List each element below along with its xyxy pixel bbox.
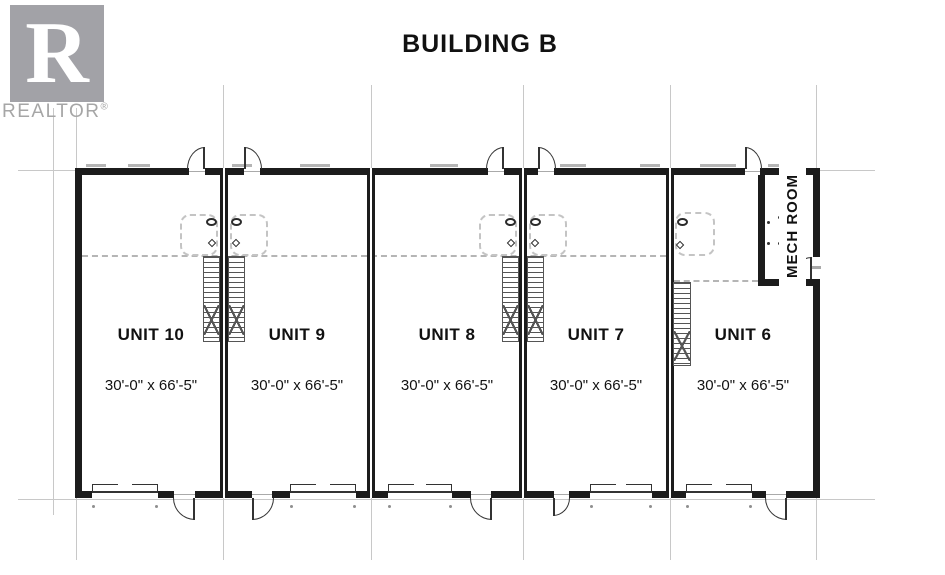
brand-text: REALTOR® [2,101,109,123]
wall-dash [640,164,660,167]
page-title: BUILDING B [290,30,670,59]
party-wall [367,168,375,498]
wall-dash [560,164,586,167]
toilet-fixture [206,218,217,226]
wall-dash [300,164,330,167]
bollard-dot [449,505,452,508]
unit-size-label: 30'-0" x 66'-5" [367,377,527,394]
door-leaf [244,147,246,169]
exit-door-arc [252,498,274,520]
grid-line-horizontal [18,499,875,500]
door-opening [252,491,272,498]
floor-plan-page: R REALTOR® BUILDING B [0,0,945,575]
wall-dash [86,164,106,167]
bollard-dot [590,505,593,508]
wall-dash [700,164,736,167]
bollard-dot [649,505,652,508]
bollard-dot [290,505,293,508]
door-opening [244,168,260,175]
door-opening [189,168,205,175]
mech-equipment-dot [767,221,770,224]
toilet-fixture [505,218,516,226]
exit-door-arc [553,498,570,516]
door-opening [538,168,554,175]
unit-size-label: 30'-0" x 66'-5" [663,377,823,394]
unit-size-label: 30'-0" x 66'-5" [516,377,676,394]
door-leaf [193,498,195,520]
unit-name-label: UNIT 7 [526,325,666,345]
garage-door-opening [686,491,752,499]
garage-door-opening [290,491,356,499]
exit-door-arc [173,498,195,520]
door-opening [174,491,195,498]
door-leaf [203,147,205,169]
entry-door-arc [244,147,262,169]
exit-door-arc [470,498,492,520]
wall-dash [128,164,150,167]
toilet-fixture [530,218,541,226]
garage-door-header [686,484,712,492]
garage-door-header [132,484,158,492]
door-opening [554,491,569,498]
stair [673,282,691,366]
unit-size-label: 30'-0" x 66'-5" [71,377,231,394]
toilet-fixture [677,218,688,226]
door-leaf [538,147,540,169]
door-leaf [810,257,812,279]
exit-door-arc [765,498,787,520]
bollard-dot [353,505,356,508]
bollard-dot [92,505,95,508]
mech-room-label: MECH ROOM [779,162,806,290]
garage-door-opening [388,491,452,499]
door-leaf [553,498,555,516]
entry-door-arc [745,147,762,169]
unit-name-label: UNIT 10 [81,325,221,345]
garage-door-header [388,484,414,492]
bollard-dot [686,505,689,508]
toilet-fixture [231,218,242,226]
door-opening [766,491,786,498]
garage-door-header [330,484,356,492]
door-leaf [785,498,787,520]
unit-name-label: UNIT 8 [377,325,517,345]
garage-door-header [426,484,452,492]
door-opening [745,168,760,175]
unit-size-label: 30'-0" x 66'-5" [217,377,377,394]
brand-name: REALTOR [2,101,101,122]
garage-door-header [290,484,316,492]
garage-door-opening [590,491,652,499]
entry-door-arc [538,147,556,169]
unit-name-label: UNIT 6 [673,325,813,345]
wall-dash [430,164,458,167]
door-leaf [745,147,747,169]
garage-door-header [92,484,118,492]
registered-mark: ® [101,102,110,113]
bollard-dot [749,505,752,508]
bollard-dot [388,505,391,508]
door-opening [488,168,504,175]
bollard-dot [155,505,158,508]
door-leaf [502,147,504,169]
mech-room-wall [758,175,765,286]
door-leaf [490,498,492,520]
garage-door-header [626,484,652,492]
mech-equipment-dot [767,242,770,245]
garage-door-header [590,484,616,492]
door-opening [812,257,821,279]
logo-r-letter: R [25,10,89,98]
garage-door-header [726,484,752,492]
door-opening [471,491,491,498]
garage-door-opening [92,491,158,499]
door-leaf [252,498,254,520]
unit-name-label: UNIT 9 [227,325,367,345]
realtor-logo: R [10,5,104,102]
